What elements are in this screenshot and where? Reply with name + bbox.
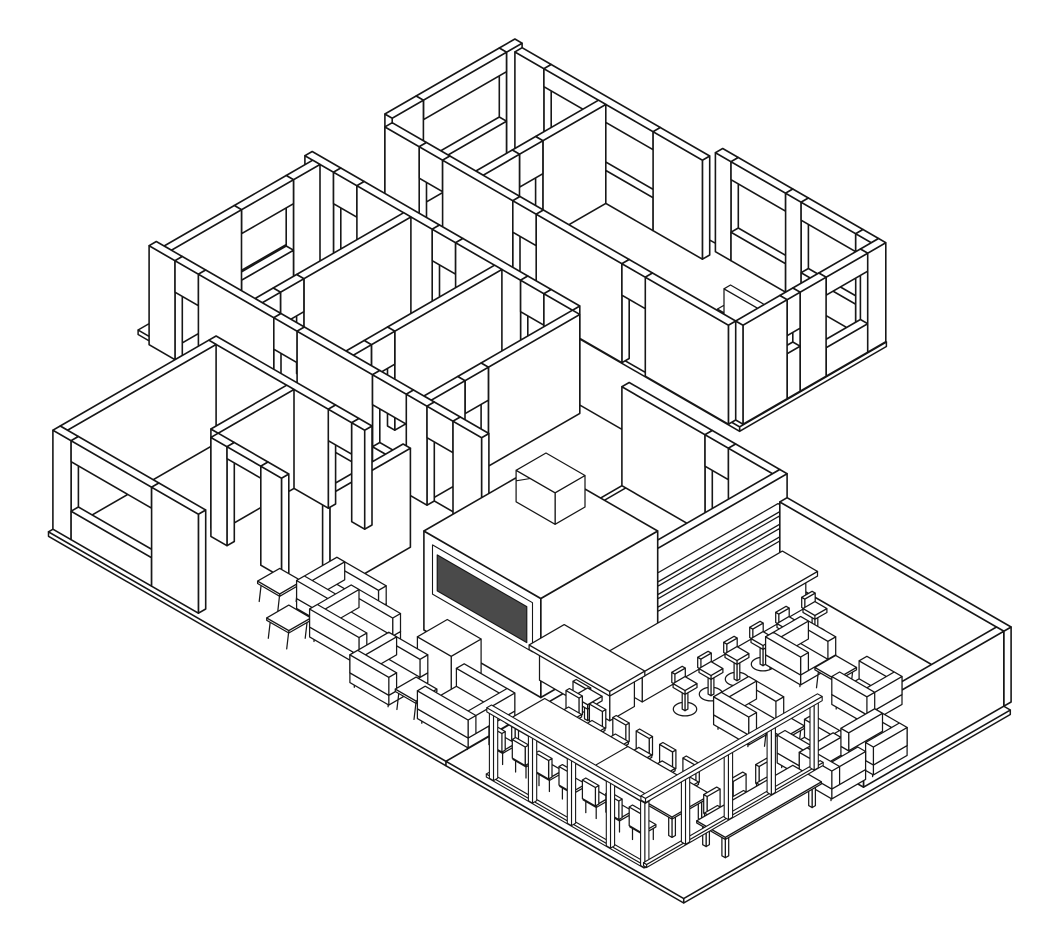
floor-plan-canvas: [0, 0, 1043, 941]
partition-corner-post: [641, 794, 649, 868]
isometric-floor-plan-drawing: [0, 0, 1043, 941]
